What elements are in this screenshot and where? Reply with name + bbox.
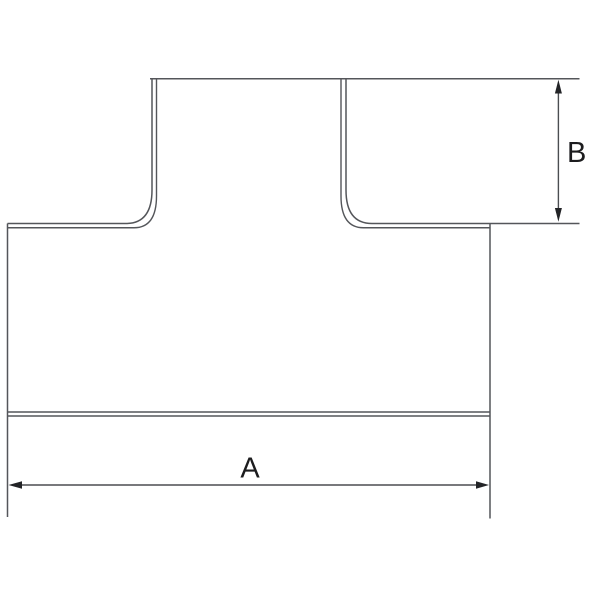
dimension-b-label: B bbox=[567, 137, 586, 169]
dimension-b: B bbox=[555, 80, 586, 222]
dimension-a: A bbox=[9, 453, 490, 489]
arrow-up-icon bbox=[555, 80, 562, 94]
tee-inner-edges bbox=[8, 79, 490, 228]
inner-right-edge bbox=[341, 79, 490, 228]
outline-left-profile bbox=[8, 79, 153, 224]
tee-fitting-drawing-canvas: A B bbox=[0, 0, 600, 600]
tee-outline bbox=[8, 79, 580, 519]
arrow-right-icon bbox=[476, 481, 489, 488]
tee-fitting-drawing: A B bbox=[0, 0, 600, 600]
inner-left-edge bbox=[8, 79, 157, 228]
arrow-down-icon bbox=[555, 208, 562, 222]
outline-right-profile bbox=[346, 79, 580, 224]
arrow-left-icon bbox=[9, 481, 23, 488]
dimension-a-label: A bbox=[240, 453, 260, 485]
